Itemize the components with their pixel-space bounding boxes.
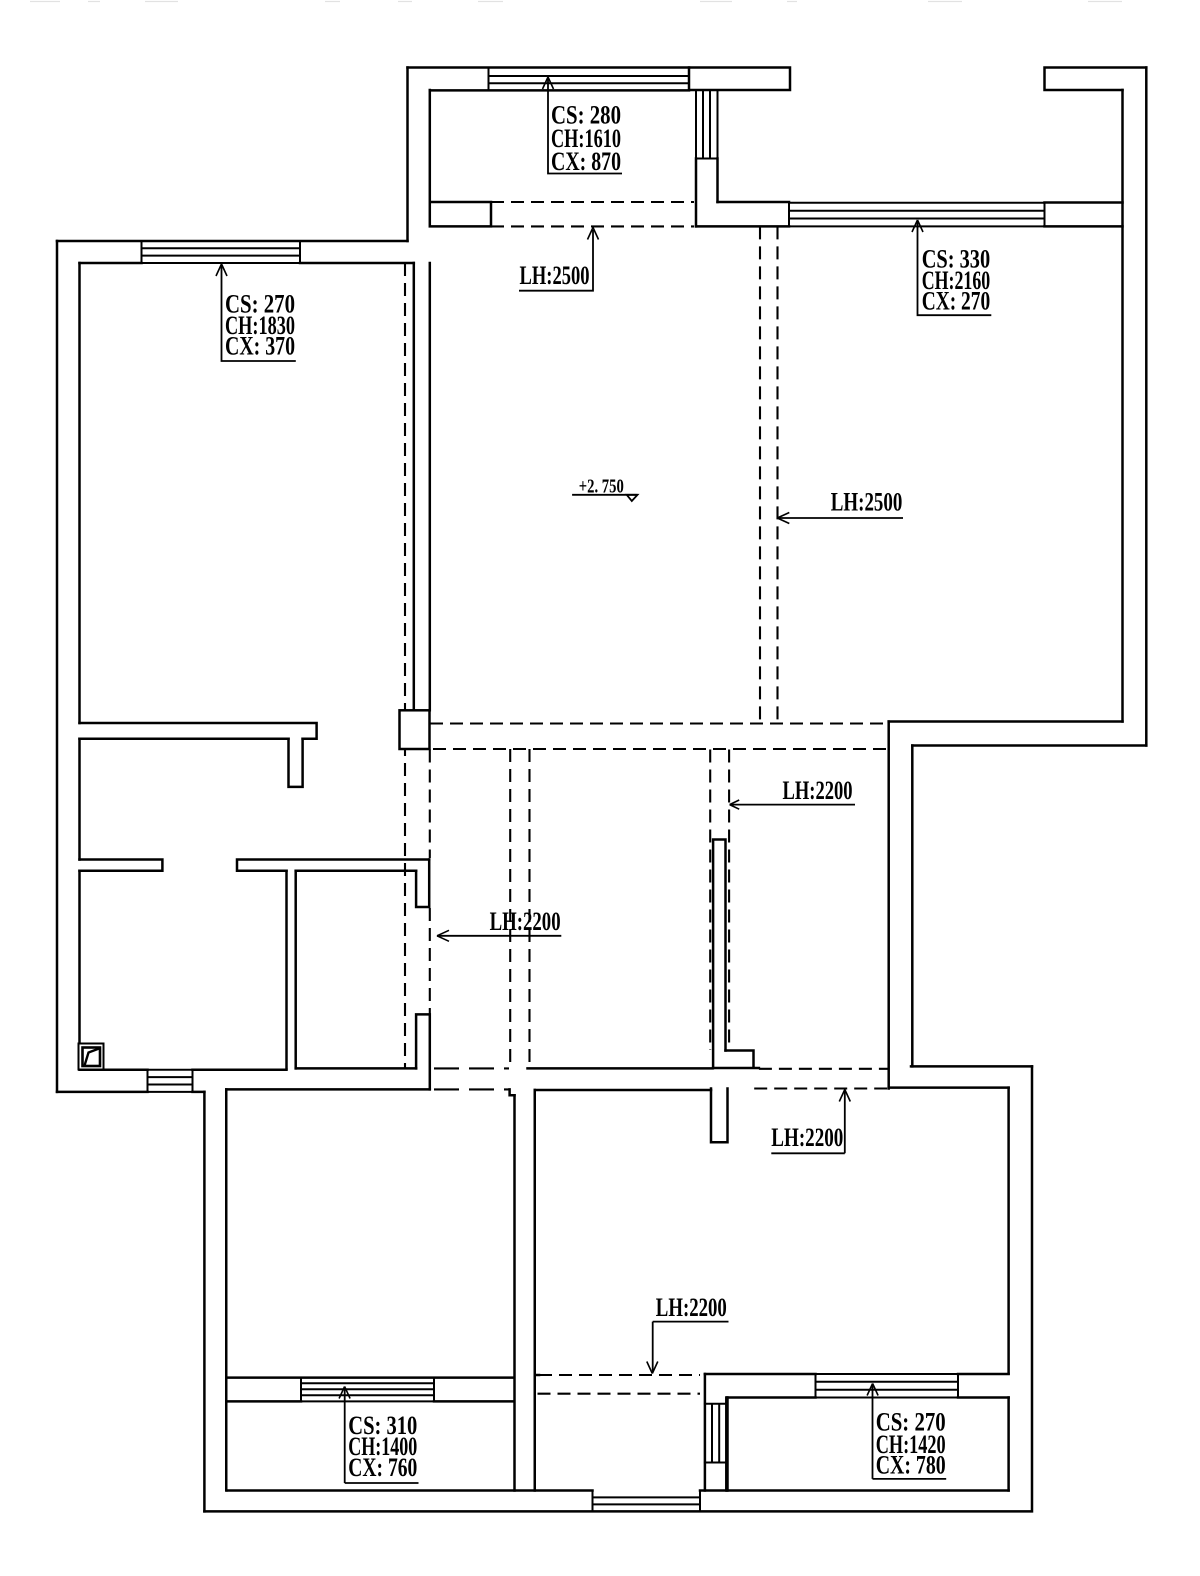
- svg-text:LH:2200: LH:2200: [783, 776, 853, 805]
- svg-text:LH:2200: LH:2200: [771, 1123, 843, 1152]
- svg-text:CX: 270: CX: 270: [922, 287, 991, 316]
- svg-text:LH:2200: LH:2200: [490, 907, 561, 936]
- svg-text:CX: 760: CX: 760: [348, 1453, 417, 1482]
- svg-text:LH:2500: LH:2500: [831, 488, 903, 517]
- svg-text:CX: 780: CX: 780: [876, 1451, 946, 1480]
- svg-text:CX: 870: CX: 870: [551, 147, 621, 176]
- svg-text:+2. 750: +2. 750: [579, 477, 624, 498]
- svg-text:LH:2500: LH:2500: [520, 261, 590, 290]
- svg-text:CX: 370: CX: 370: [225, 332, 295, 361]
- svg-text:LH:2200: LH:2200: [656, 1293, 727, 1322]
